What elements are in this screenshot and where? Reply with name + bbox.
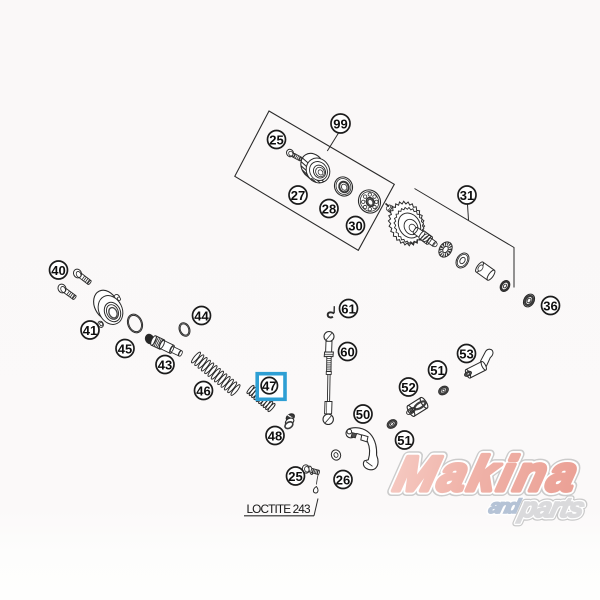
- svg-text:27: 27: [291, 188, 305, 203]
- svg-text:40: 40: [51, 263, 65, 278]
- svg-text:43: 43: [158, 358, 172, 373]
- svg-text:and: and: [487, 496, 523, 518]
- svg-text:parts: parts: [515, 492, 588, 524]
- svg-text:48: 48: [268, 429, 282, 444]
- svg-text:26: 26: [336, 473, 350, 488]
- svg-text:36: 36: [543, 299, 557, 314]
- svg-text:45: 45: [118, 342, 132, 357]
- svg-text:25: 25: [288, 469, 302, 484]
- svg-text:99: 99: [333, 117, 347, 132]
- svg-text:31: 31: [460, 188, 474, 203]
- svg-text:30: 30: [348, 219, 362, 234]
- svg-text:47: 47: [262, 379, 276, 394]
- svg-text:61: 61: [341, 302, 355, 317]
- svg-text:LOCTITE 243: LOCTITE 243: [247, 502, 311, 516]
- svg-text:46: 46: [196, 384, 210, 399]
- svg-text:50: 50: [356, 407, 370, 422]
- svg-text:28: 28: [322, 202, 336, 217]
- svg-text:60: 60: [340, 345, 354, 360]
- svg-text:52: 52: [401, 380, 415, 395]
- svg-text:25: 25: [269, 133, 283, 148]
- svg-text:44: 44: [194, 309, 209, 324]
- svg-text:41: 41: [83, 323, 97, 338]
- svg-text:51: 51: [430, 363, 444, 378]
- svg-text:53: 53: [459, 347, 473, 362]
